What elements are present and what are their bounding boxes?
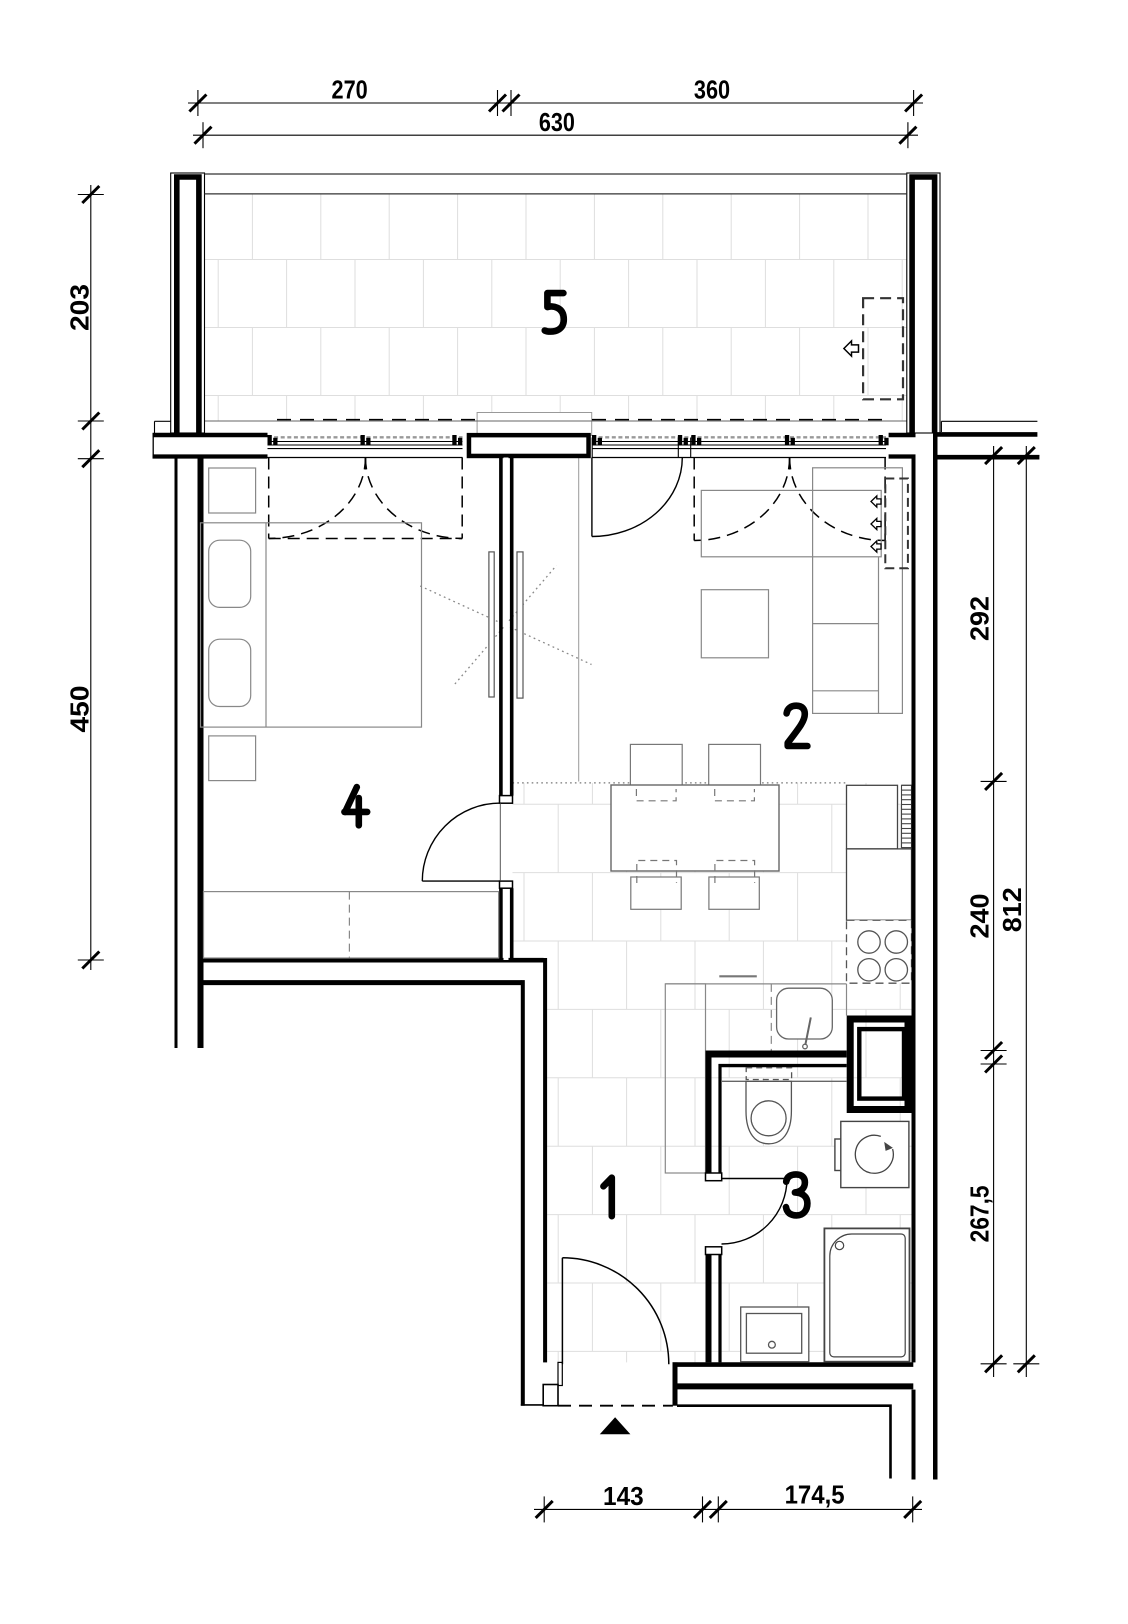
svg-text:174,5: 174,5 [785, 1480, 845, 1510]
svg-text:203: 203 [65, 284, 95, 331]
svg-text:630: 630 [539, 107, 575, 137]
svg-text:143: 143 [603, 1481, 644, 1511]
svg-text:360: 360 [694, 75, 730, 105]
svg-text:292: 292 [965, 596, 995, 641]
svg-text:450: 450 [65, 686, 95, 733]
svg-text:812: 812 [997, 887, 1027, 932]
svg-text:240: 240 [965, 894, 995, 939]
svg-text:270: 270 [332, 75, 368, 105]
svg-text:267,5: 267,5 [965, 1185, 995, 1242]
